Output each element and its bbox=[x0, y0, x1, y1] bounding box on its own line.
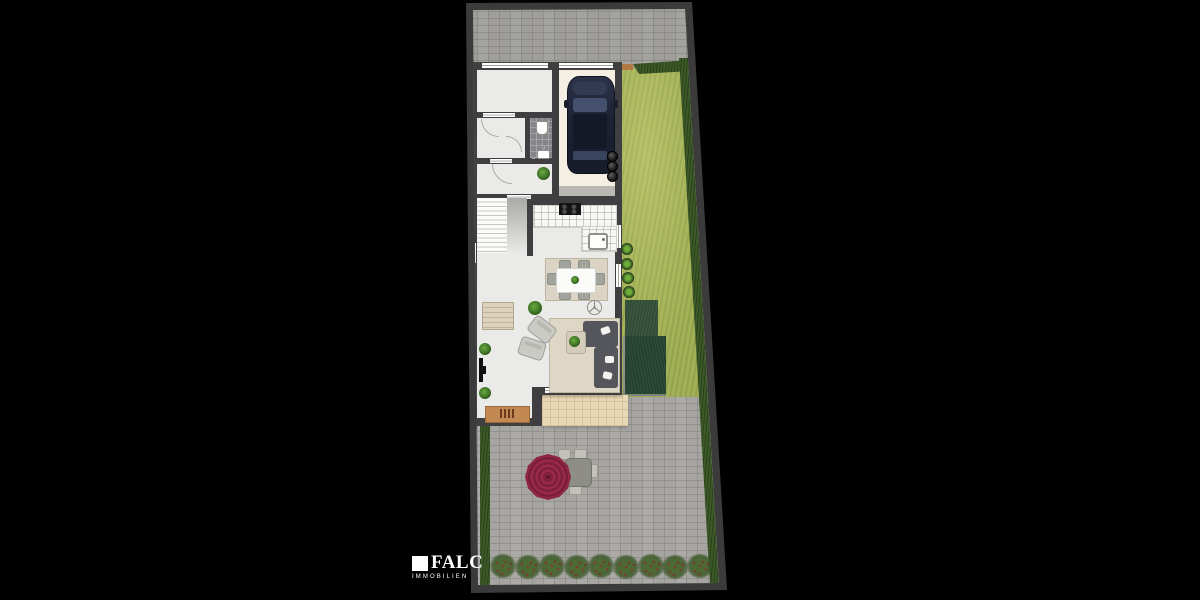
car-rear-window bbox=[573, 151, 607, 160]
dining-chair bbox=[595, 273, 605, 285]
brand-logo-icon bbox=[412, 556, 428, 571]
kitchen-sink bbox=[588, 233, 608, 250]
car-mirror bbox=[613, 100, 618, 108]
rose-bush bbox=[687, 554, 713, 578]
garden-shed-upper bbox=[625, 300, 658, 336]
potted-plant bbox=[479, 387, 491, 399]
rose-bush bbox=[638, 554, 664, 578]
waste-bin bbox=[607, 171, 618, 182]
brand-name: FALC bbox=[431, 553, 483, 572]
potted-plant bbox=[621, 243, 633, 255]
corner-sofa bbox=[594, 347, 618, 388]
rose-bush bbox=[490, 554, 516, 578]
corner-sofa bbox=[583, 321, 618, 347]
property-plot bbox=[455, 0, 745, 600]
table-centerpiece bbox=[571, 276, 579, 284]
plot-grounds bbox=[455, 0, 745, 600]
stair-landing bbox=[507, 198, 527, 253]
parasol bbox=[525, 454, 571, 500]
toilet bbox=[536, 121, 548, 135]
potted-plant bbox=[569, 336, 580, 347]
shelf-unit bbox=[482, 302, 514, 330]
car-windshield bbox=[573, 98, 607, 112]
car-mirror bbox=[564, 100, 569, 108]
staircase bbox=[477, 198, 509, 253]
window bbox=[616, 264, 621, 287]
window bbox=[482, 63, 548, 68]
door-opening bbox=[490, 159, 512, 163]
potted-plant bbox=[621, 258, 633, 270]
ceiling-fan-icon bbox=[586, 299, 603, 316]
car-hood bbox=[573, 82, 607, 95]
carport-threshold bbox=[559, 186, 615, 196]
sink bbox=[537, 150, 550, 159]
interior-window bbox=[483, 113, 515, 117]
rose-bush bbox=[613, 555, 639, 579]
sofa-cushion bbox=[605, 356, 614, 363]
floor-plan-canvas: { "branding": { "name": "FALC", "tagline… bbox=[0, 0, 1200, 600]
rose-bush bbox=[588, 554, 614, 578]
potted-plant bbox=[623, 286, 635, 298]
storage-room-floor bbox=[477, 70, 552, 112]
patio-terrace bbox=[542, 395, 628, 426]
wall-wc bbox=[525, 118, 530, 158]
rose-bush bbox=[564, 555, 590, 579]
garden-shed-lower bbox=[623, 336, 666, 396]
rose-bush bbox=[662, 555, 688, 579]
car-roof bbox=[573, 114, 607, 149]
potted-plant bbox=[528, 301, 542, 315]
wall-carport-left bbox=[552, 70, 559, 200]
tv-mount bbox=[483, 366, 486, 374]
stove bbox=[559, 203, 581, 215]
potted-plant bbox=[537, 167, 550, 180]
sideboard-detail bbox=[500, 409, 515, 418]
brand-tagline: IMMOBILIEN bbox=[412, 574, 484, 580]
potted-plant bbox=[622, 272, 634, 284]
rose-bush bbox=[539, 554, 565, 578]
carport-opening bbox=[559, 63, 613, 68]
brand-logo: FALC IMMOBILIEN bbox=[412, 553, 484, 580]
rose-bush bbox=[515, 555, 541, 579]
potted-plant bbox=[479, 343, 491, 355]
